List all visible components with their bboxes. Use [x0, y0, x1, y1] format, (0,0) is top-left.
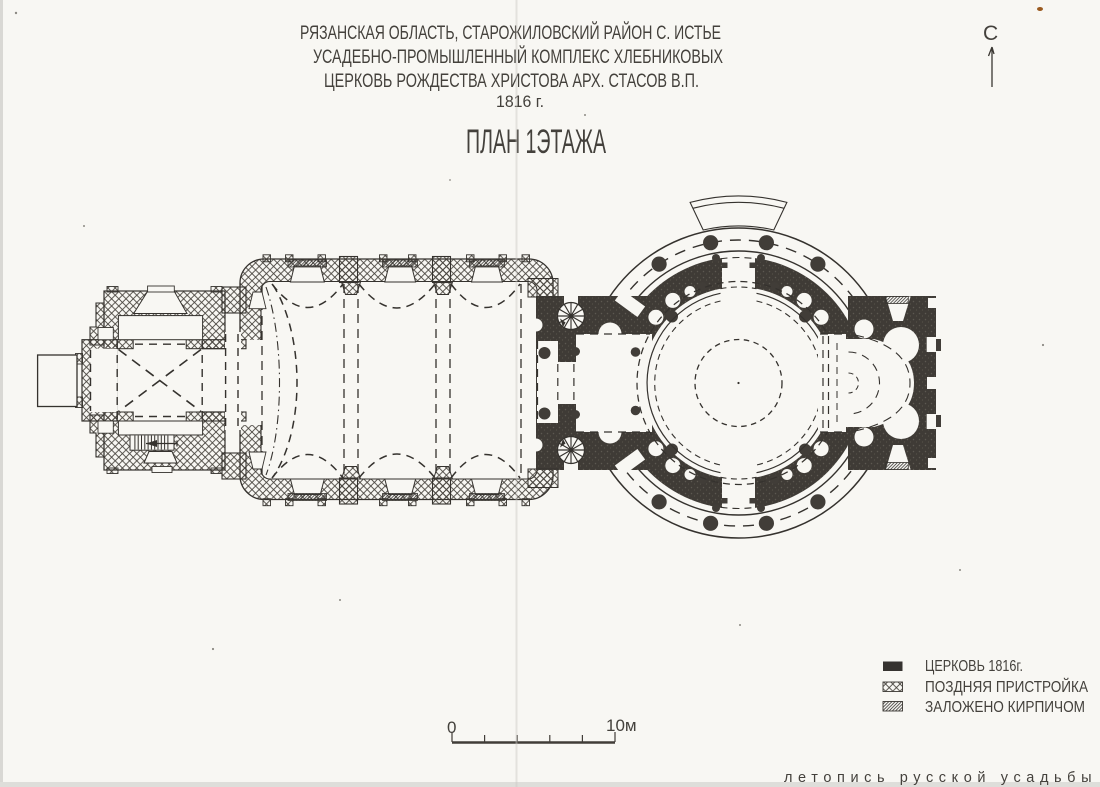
- svg-text:ЦЕРКОВЬ РОЖДЕСТВА ХРИСТОВА АР: ЦЕРКОВЬ РОЖДЕСТВА ХРИСТОВА АРХ. СТАСОВ В…: [324, 71, 699, 92]
- svg-text:0: 0: [447, 718, 456, 737]
- svg-text:ЗАЛОЖЕНО КИРПИЧОМ: ЗАЛОЖЕНО КИРПИЧОМ: [925, 699, 1085, 716]
- svg-text:С: С: [983, 22, 998, 45]
- svg-text:10м: 10м: [606, 716, 637, 735]
- svg-text:ПЛАН 1ЭТАЖА: ПЛАН 1ЭТАЖА: [466, 123, 606, 161]
- svg-text:ЦЕРКОВЬ 1816г.: ЦЕРКОВЬ 1816г.: [925, 658, 1023, 675]
- svg-text:1816 г.: 1816 г.: [496, 92, 544, 111]
- svg-text:УСАДЕБНО-ПРОМЫШЛЕННЫЙ КОМПЛЕКС: УСАДЕБНО-ПРОМЫШЛЕННЫЙ КОМПЛЕКС ХЛЕБНИКОВ…: [313, 46, 723, 68]
- svg-text:РЯЗАНСКАЯ ОБЛАСТЬ, СТАРОЖИЛОВС: РЯЗАНСКАЯ ОБЛАСТЬ, СТАРОЖИЛОВСКИЙ РАЙОН …: [300, 22, 721, 44]
- svg-text:ПОЗДНЯЯ ПРИСТРОЙКА: ПОЗДНЯЯ ПРИСТРОЙКА: [925, 677, 1088, 696]
- svg-text:летопись русской усадьбы: летопись русской усадьбы: [784, 770, 1097, 786]
